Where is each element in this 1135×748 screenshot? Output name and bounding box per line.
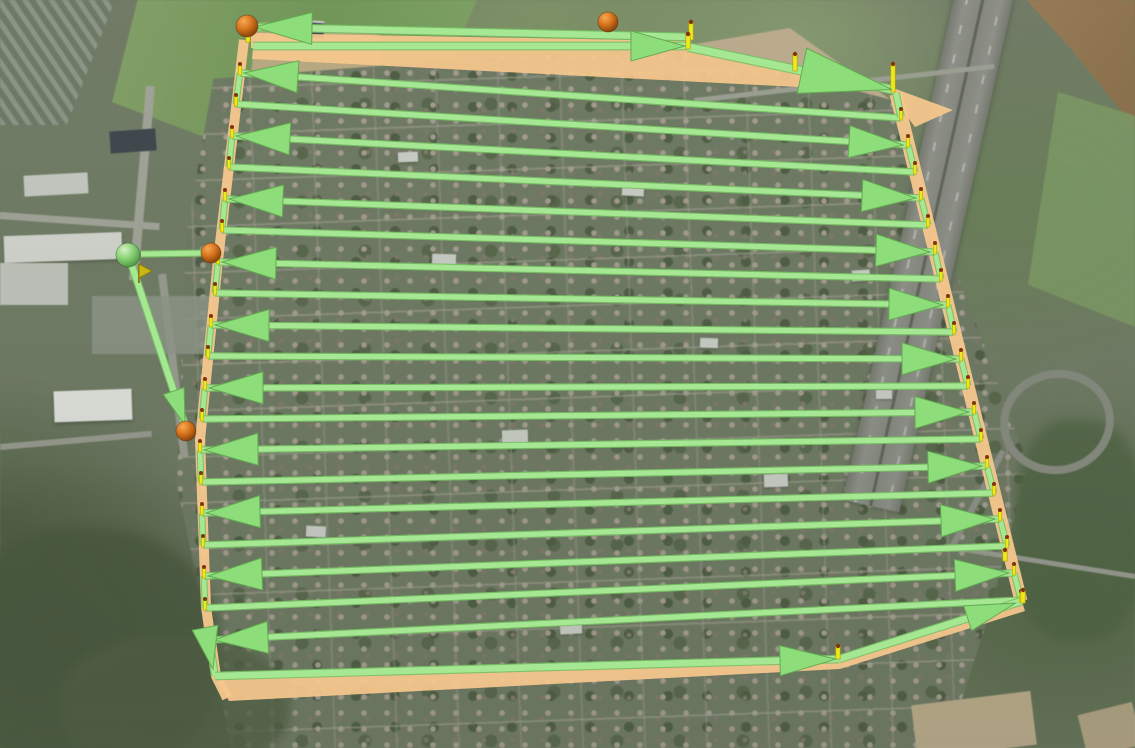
survey-pass-line xyxy=(204,546,1007,576)
turn-marker-dot xyxy=(946,294,950,298)
survey-pass-line xyxy=(205,386,968,388)
flight-route-overlay xyxy=(0,0,1135,748)
waypoint-pole-dot xyxy=(1003,548,1007,552)
survey-pass-line xyxy=(222,230,935,252)
survey-pass-line xyxy=(218,262,941,279)
turn-marker-dot xyxy=(200,502,204,506)
turn-marker-dot xyxy=(201,534,205,538)
turn-marker-dot xyxy=(202,565,206,569)
bottom-pass-arrow xyxy=(780,646,836,676)
pass-direction-arrow xyxy=(902,343,956,375)
waypoint-pole xyxy=(793,54,797,71)
turn-marker-dot xyxy=(933,241,937,245)
waypoint-pole-dot xyxy=(891,62,895,66)
pass-direction-arrow xyxy=(214,621,269,653)
survey-pass-line xyxy=(229,167,921,198)
pass-direction-arrow xyxy=(206,496,260,528)
pass-direction-arrow xyxy=(861,180,916,212)
pass-direction-arrow xyxy=(941,505,995,537)
waypoint-pole xyxy=(891,64,895,92)
turn-marker-dot xyxy=(998,508,1002,512)
turn-marker-dot xyxy=(913,161,917,165)
pass-direction-arrow xyxy=(229,185,284,217)
pass-direction-arrow xyxy=(215,310,269,342)
start-flag[interactable] xyxy=(139,264,152,278)
turn-marker-dot xyxy=(220,219,224,223)
turn-marker-dot xyxy=(919,187,923,191)
pass-direction-arrow xyxy=(928,451,982,483)
waypoint-sphere-2[interactable] xyxy=(598,12,618,32)
turn-marker-dot xyxy=(939,268,943,272)
turn-marker-dot xyxy=(985,455,989,459)
pass-direction-arrow xyxy=(208,558,263,590)
waypoint-pole xyxy=(686,34,690,49)
pass-direction-arrow xyxy=(915,396,969,428)
turn-marker-dot xyxy=(1005,535,1009,539)
pass-direction-arrow xyxy=(222,247,276,279)
survey-pass-line xyxy=(215,293,948,305)
turn-marker-dot xyxy=(199,471,203,475)
pass-direction-arrow xyxy=(204,433,258,465)
turn-marker-dot xyxy=(952,321,956,325)
survey-pass-line xyxy=(225,199,928,225)
top-diagonal-arrow xyxy=(797,48,892,93)
waypoint-pole-dot xyxy=(836,644,840,648)
turn-marker-dot xyxy=(899,107,903,111)
turn-marker-dot xyxy=(230,125,234,129)
satellite-map-view[interactable] xyxy=(0,0,1135,748)
turn-marker-dot xyxy=(926,214,930,218)
waypoint-pole-dot xyxy=(686,32,690,36)
survey-pass-line xyxy=(201,466,987,482)
turn-marker-dot xyxy=(959,348,963,352)
pass-direction-arrow xyxy=(954,559,1009,591)
turn-marker-dot xyxy=(223,188,227,192)
survey-pass-line xyxy=(202,493,994,513)
turn-marker-dot xyxy=(906,134,910,138)
turn-marker-dot xyxy=(227,156,231,160)
turn-marker-dot xyxy=(238,62,242,66)
turn-marker-dot xyxy=(979,428,983,432)
pass-direction-arrow xyxy=(876,234,930,266)
waypoint-pole-dot xyxy=(793,52,797,56)
turn-marker-dot xyxy=(1012,562,1016,566)
turn-marker-dot xyxy=(234,93,238,97)
survey-pass-line xyxy=(200,439,981,450)
survey-pass-line xyxy=(203,519,1000,545)
turn-marker-dot xyxy=(209,314,213,318)
waypoint-sphere-1[interactable] xyxy=(236,15,258,37)
waypoint-pole-dot xyxy=(689,20,693,24)
survey-pass-line xyxy=(208,356,961,359)
pass-direction-arrow xyxy=(889,288,943,320)
turn-down-arrow xyxy=(192,625,218,669)
home-sphere[interactable] xyxy=(116,243,140,267)
entry-descent-arrow xyxy=(163,388,185,426)
pass-direction-arrow xyxy=(848,126,903,158)
pass-direction-arrow xyxy=(236,123,291,155)
turn-marker-dot xyxy=(200,408,204,412)
turn-marker-dot xyxy=(213,282,217,286)
survey-pass-line xyxy=(211,325,954,332)
waypoint-pole-dot xyxy=(1021,588,1025,592)
turn-marker-dot xyxy=(203,597,207,601)
turn-marker-dot xyxy=(198,439,202,443)
bottom-curtain-wedge xyxy=(214,599,1025,701)
waypoint-sphere-4[interactable] xyxy=(176,421,196,441)
turn-marker-dot xyxy=(972,401,976,405)
turn-marker-dot xyxy=(992,482,996,486)
bottom-diagonal-arrow xyxy=(964,603,1016,630)
turn-marker-dot xyxy=(203,377,207,381)
home-connector xyxy=(141,253,207,254)
waypoint-sphere-3[interactable] xyxy=(201,243,221,263)
turn-marker-dot xyxy=(206,345,210,349)
survey-pass-line xyxy=(202,412,974,419)
turn-marker-dot xyxy=(966,375,970,379)
pass-direction-arrow xyxy=(209,372,263,404)
